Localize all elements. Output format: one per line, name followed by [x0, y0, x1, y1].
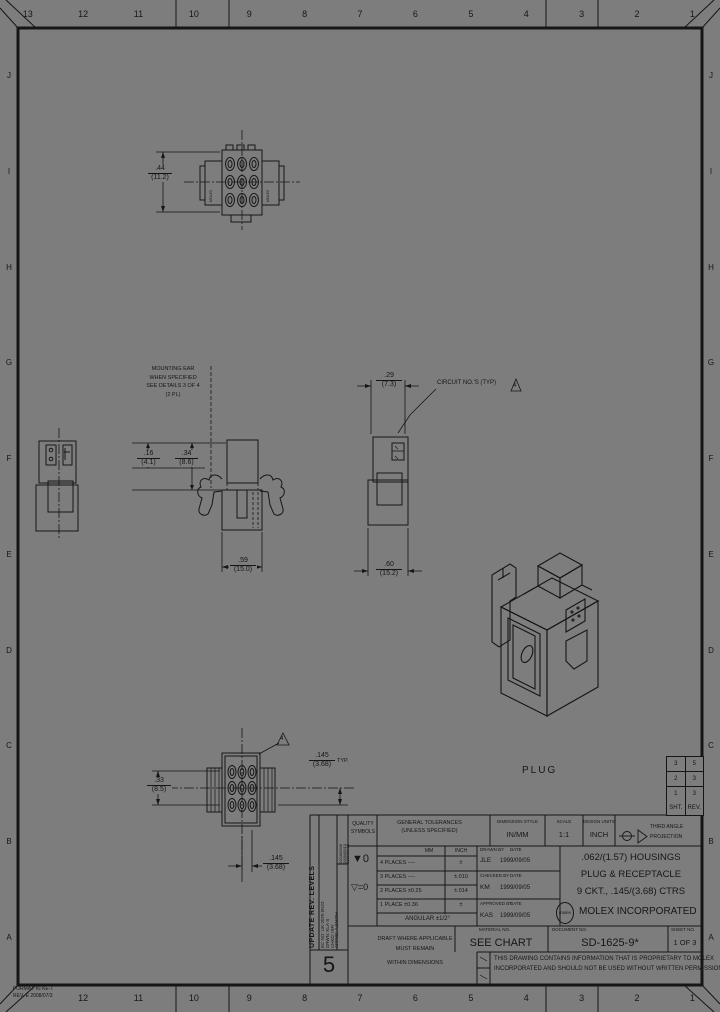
- rev-number: 3: [686, 787, 704, 801]
- tolerance-angular: ANGULAR ±1/2°: [380, 916, 475, 922]
- zone-letter: J: [702, 28, 720, 124]
- zone-letter: I: [0, 124, 18, 220]
- border-zone-letters-right: JIHGFEDCBA: [702, 28, 720, 985]
- checked-date-value: 1999/09/05: [500, 885, 530, 891]
- proprietary-note-line-1: THIS DRAWING CONTAINS INFORMATION THAT I…: [494, 956, 714, 962]
- border-zone-numbers-bottom: 121110987654321: [0, 984, 720, 1012]
- zone-number: 12: [55, 984, 110, 1012]
- zone-number: 5: [443, 984, 498, 1012]
- dimension-style-value: IN/MM: [490, 830, 545, 839]
- sheet-rev-row: 1 3: [667, 787, 703, 801]
- zone-number: 8: [277, 0, 332, 28]
- tolerance-value: ±.010: [446, 874, 476, 880]
- zone-letter: G: [0, 315, 18, 411]
- quality-symbol-1: ▼0: [352, 853, 369, 865]
- note-line: (2 PL): [131, 391, 215, 400]
- date-label: DATE: [510, 847, 522, 852]
- tolerance-value: ±.014: [446, 888, 476, 894]
- dimension-style-label: DIMENSION STYLE: [490, 819, 545, 824]
- mounting-ear-note: MOUNTING EARWHEN SPECIFIEDSEE DETAILS 3 …: [131, 365, 215, 399]
- zone-letter: F: [0, 411, 18, 507]
- approved-by-label: APPROVED BY: [480, 901, 512, 906]
- tolerance-col-inch: INCH: [447, 848, 475, 854]
- zone-letter: C: [0, 698, 18, 794]
- dim-plug-pitch-suffix: TYP.: [337, 758, 349, 764]
- zone-letter: D: [702, 602, 720, 698]
- quality-header-1: QUALITY: [349, 821, 377, 827]
- date-label: DATE: [510, 873, 522, 878]
- checked-by-value: KM: [480, 884, 490, 891]
- zone-letter: B: [0, 794, 18, 890]
- rev-col-header: REV.: [686, 801, 704, 815]
- zone-number: 7: [332, 0, 387, 28]
- company-name: MOLEX INCORPORATED: [579, 906, 697, 917]
- zone-letter: H: [702, 219, 720, 315]
- tolerance-row: 4 PLACES ---- ±: [377, 856, 477, 870]
- sheet-rev-big: 5: [310, 952, 348, 978]
- sheet-number: 2: [667, 772, 686, 786]
- sheet-rev-rows: 3 5 2 3 1 3: [667, 757, 703, 801]
- drawing-sheet: 13121110987654321 121110987654321 JIHGFE…: [0, 0, 720, 1012]
- proprietary-note-line-2: INCORPORATED AND SHOULD NOT BE USED WITH…: [494, 966, 720, 972]
- tolerance-label: 3 PLACES ----: [377, 874, 446, 880]
- zone-number: 9: [222, 984, 277, 1012]
- revision-triangle-label: 4: [514, 383, 517, 389]
- scale-label: SCALE: [545, 819, 583, 824]
- dim-side-a: .16 (4.1): [136, 450, 161, 467]
- sheet-col-header: SHT.: [667, 801, 686, 815]
- zone-number: 13: [0, 0, 55, 28]
- zone-letter: D: [0, 602, 18, 698]
- zone-letter: E: [0, 507, 18, 603]
- zone-number: 10: [166, 984, 221, 1012]
- dim-side-b: .34 (8.6): [174, 450, 199, 467]
- zone-number: 4: [499, 0, 554, 28]
- molex-logo: molex: [556, 910, 574, 915]
- tolerance-label: 1 PLACE ±0.36: [377, 902, 446, 908]
- note-line: WHEN SPECIFIED: [131, 374, 215, 383]
- zone-letter: I: [702, 124, 720, 220]
- date-label: DATE: [510, 901, 522, 906]
- zone-number: 1: [665, 0, 720, 28]
- drawing-title-line-1: .062/(1.57) HOUSINGS: [562, 852, 700, 863]
- design-units-value: INCH: [583, 830, 615, 839]
- zone-letter: A: [0, 889, 18, 985]
- print-format-note: FORMAT: KI KE-T REV. E 2008/07/3: [13, 986, 53, 999]
- zone-number: 7: [332, 984, 387, 1012]
- checked-by-label: CHECKED BY: [480, 873, 509, 878]
- zone-letter: H: [0, 219, 18, 315]
- dim-side-bottom-width: .59 (15.0): [229, 557, 257, 574]
- circuit-numbers-note: CIRCUIT NO.'S (TYP): [437, 380, 496, 386]
- update-rev-levels-title: UPDATE REV. LEVELS: [309, 820, 316, 948]
- drawn-date-value: 1999/09/05: [500, 858, 530, 864]
- rev-number: 3: [686, 772, 704, 786]
- sheet-number: 1: [667, 787, 686, 801]
- dim-plug-pitch: .145 (3.68): [308, 752, 336, 769]
- drawn-by-label: DRAWN BY: [480, 847, 504, 852]
- update-dates: 2004/09/062009/09/132009/09/15: [338, 818, 349, 864]
- document-no-label: DOCUMENT NO.: [552, 927, 587, 932]
- projection-line-1: THIRD ANGLE: [650, 824, 683, 830]
- zone-letter: C: [702, 698, 720, 794]
- sheet-rev-footer: SHT. REV.: [667, 801, 703, 815]
- zone-number: 4: [499, 984, 554, 1012]
- sheet-rev-row: 3 5: [667, 757, 703, 772]
- sheet-rev-table: 3 5 2 3 1 3 SHT. REV.: [666, 756, 704, 816]
- zone-letter: F: [702, 411, 720, 507]
- receptacle-rail-marking-right: MOLEX: [266, 166, 270, 202]
- tolerance-value: ±: [446, 902, 476, 908]
- dim-receptacle-width: .44 (11.2): [147, 165, 173, 182]
- tolerance-value: ±: [446, 860, 476, 866]
- zone-number: 8: [277, 984, 332, 1012]
- approved-by-value: KAS: [480, 912, 493, 919]
- projection-line-2: PROJECTION: [650, 834, 682, 840]
- drawing-title-line-3: 9 CKT., .145/(3.68) CTRS: [562, 886, 700, 897]
- zone-number: 11: [111, 0, 166, 28]
- tolerance-row: 3 PLACES ---- ±.010: [377, 870, 477, 884]
- zone-number: 6: [388, 984, 443, 1012]
- quality-symbol-2: ▽=0: [351, 882, 368, 893]
- drawn-by-value: JLE: [480, 857, 491, 864]
- iso-view-label: PLUG: [522, 765, 557, 776]
- dim-plug-left: .33 (8.5): [146, 777, 172, 794]
- sheet-rev-row: 2 3: [667, 772, 703, 787]
- tolerance-row: 1 PLACE ±0.36 ±: [377, 898, 477, 912]
- zone-number: 2: [609, 0, 664, 28]
- dim-pin-top-width: .29 (7.3): [375, 372, 403, 389]
- update-appvd: APPVD: A.SMITH: [334, 868, 339, 948]
- zone-number: 3: [554, 984, 609, 1012]
- design-units-label: DESIGN UNITS: [583, 819, 615, 824]
- rev-number: 5: [686, 757, 704, 771]
- scale-value: 1:1: [545, 830, 583, 839]
- document-no-value: SD-1625-9*: [556, 937, 664, 949]
- draft-note-line-3: WITHIN DIMENSIONS: [355, 960, 475, 966]
- tolerance-col-mm: MM: [415, 848, 443, 854]
- zone-number: 9: [222, 0, 277, 28]
- tolerance-label: 2 PLACES ±0.25: [377, 888, 446, 894]
- dim-pin-bottom-width: .60 (15.2): [375, 561, 403, 578]
- print-format-line: FORMAT: KI KE-T: [13, 986, 53, 993]
- drawing-title-line-2: PLUG & RECEPTACLE: [562, 869, 700, 880]
- tolerance-header-1: GENERAL TOLERANCES: [382, 820, 477, 826]
- draft-note-line-2: MUST REMAIN: [355, 946, 475, 952]
- zone-letter: E: [702, 507, 720, 603]
- border-zone-letters-left: JIHGFEDCBA: [0, 28, 18, 985]
- zone-number: 3: [554, 0, 609, 28]
- zone-number: 1: [665, 984, 720, 1012]
- tolerance-header-2: (UNLESS SPECIFIED): [382, 828, 477, 834]
- draft-note-line-1: DRAFT WHERE APPLICABLE: [355, 936, 475, 942]
- quality-header-2: SYMBOLS: [349, 829, 377, 835]
- approved-date-value: 1999/09/05: [500, 913, 530, 919]
- tolerance-row: 2 PLACES ±0.25 ±.014: [377, 884, 477, 898]
- border-zone-numbers-top: 13121110987654321: [0, 0, 720, 28]
- receptacle-rail-marking-left: MOLEX: [209, 166, 213, 202]
- zone-number: 5: [443, 0, 498, 28]
- note-line: MOUNTING EAR: [131, 365, 215, 374]
- zone-number: 11: [111, 984, 166, 1012]
- zone-number: 6: [388, 0, 443, 28]
- tolerance-rows: 4 PLACES ---- ± 3 PLACES ---- ±.010 2 PL…: [377, 856, 477, 912]
- revision-triangle-label: 4: [281, 736, 284, 742]
- print-rev-line: REV. E 2008/07/3: [13, 993, 53, 1000]
- zone-number: 2: [609, 984, 664, 1012]
- note-line: SEE DETAILS 3 OF 4: [131, 382, 215, 391]
- zone-number: 12: [55, 0, 110, 28]
- zone-number: 10: [166, 0, 221, 28]
- sheet-no-label: SHEET NO.: [671, 927, 695, 932]
- sheet-number: 3: [667, 757, 686, 771]
- zone-letter: G: [702, 315, 720, 411]
- material-no-label: MATERIAL NO.: [479, 927, 510, 932]
- zone-letter: J: [0, 28, 18, 124]
- dim-plug-pitch2: .145 (3.68): [262, 855, 290, 872]
- zone-letter: B: [702, 794, 720, 890]
- sheet-no-value: 1 OF 3: [668, 938, 702, 947]
- tolerance-label: 4 PLACES ----: [377, 860, 446, 866]
